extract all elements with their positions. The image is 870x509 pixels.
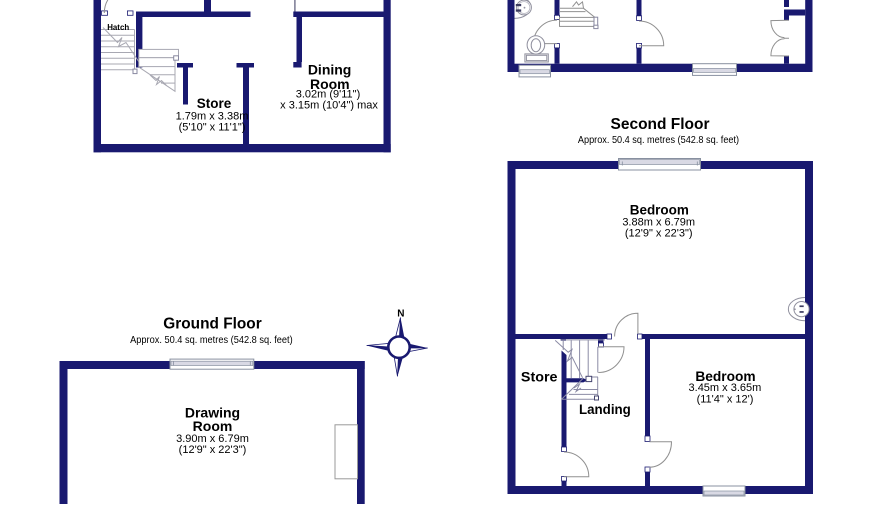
- svg-text:(12'9" x 22'3"): (12'9" x 22'3"): [179, 444, 247, 456]
- svg-text:Store: Store: [197, 95, 232, 111]
- svg-text:(12'9" x 22'3"): (12'9" x 22'3"): [625, 227, 693, 239]
- svg-text:Room: Room: [193, 418, 233, 434]
- svg-text:x 3.15m (10'4") max: x 3.15m (10'4") max: [280, 100, 378, 112]
- svg-text:Store: Store: [521, 369, 558, 385]
- svg-text:3.90m x 6.79m: 3.90m x 6.79m: [176, 433, 249, 445]
- svg-text:Approx. 50.4 sq. metres (542.8: Approx. 50.4 sq. metres (542.8 sq. feet): [578, 134, 739, 146]
- svg-text:Landing: Landing: [579, 401, 631, 417]
- svg-text:(5'10" x 11'1"): (5'10" x 11'1"): [179, 121, 246, 133]
- svg-text:Approx. 50.4 sq. metres (542.8: Approx. 50.4 sq. metres (542.8 sq. feet): [130, 334, 293, 346]
- svg-text:N: N: [397, 309, 404, 320]
- svg-text:Hatch: Hatch: [107, 22, 129, 32]
- svg-text:Bedroom: Bedroom: [630, 202, 689, 218]
- svg-text:Ground Floor: Ground Floor: [163, 315, 261, 332]
- svg-text:Second Floor: Second Floor: [611, 116, 710, 133]
- svg-text:(11'4" x 12'): (11'4" x 12'): [697, 393, 754, 405]
